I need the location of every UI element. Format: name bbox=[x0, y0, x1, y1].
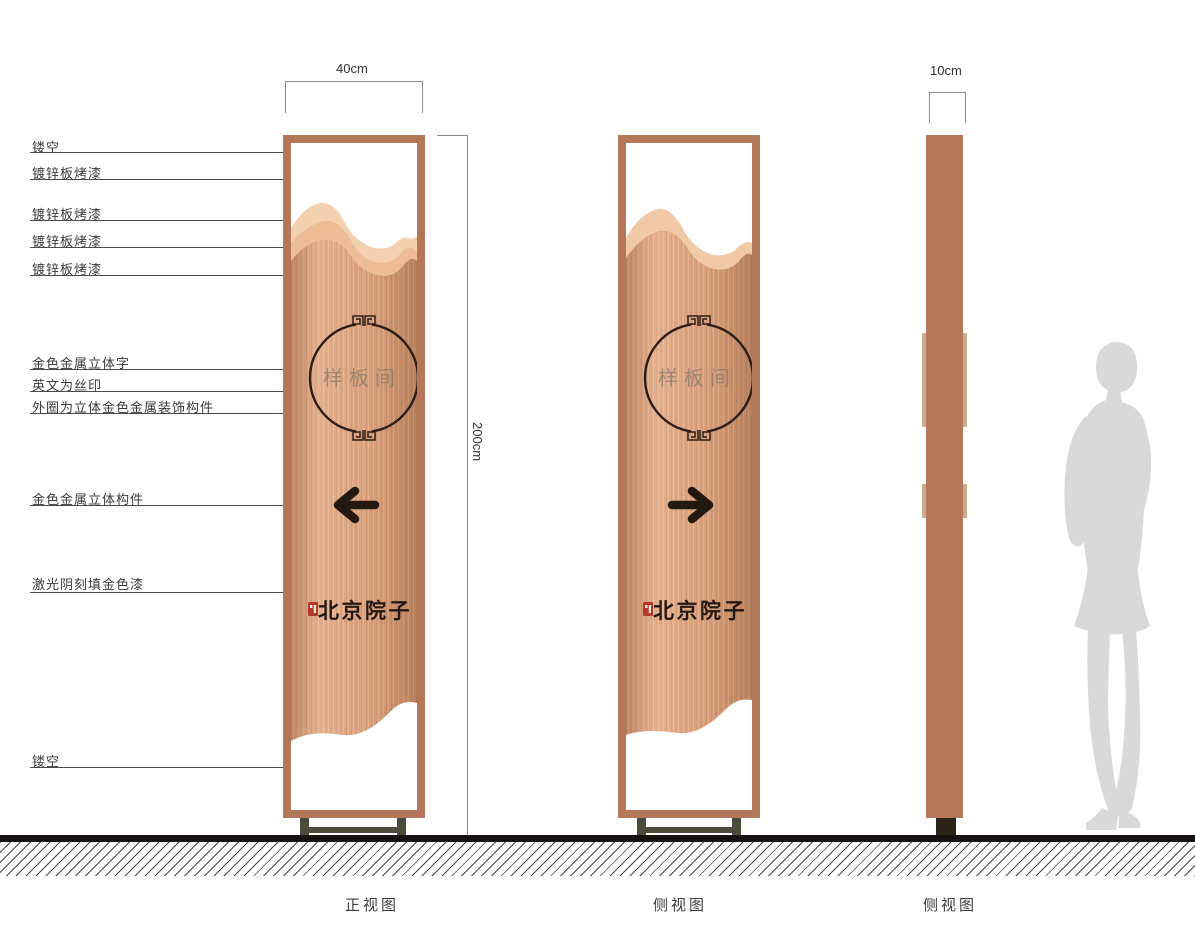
view-title-front: 正视图 bbox=[345, 894, 399, 915]
dim-bracket-height bbox=[437, 135, 468, 836]
pylon-side-graphic: 样板间 北京院子 bbox=[626, 143, 752, 810]
red-seal-icon bbox=[308, 602, 318, 616]
pylon-front-graphic: 样板间 北京院子 bbox=[291, 143, 417, 810]
profile-base-block bbox=[936, 818, 956, 836]
view-title-side-1: 侧视图 bbox=[653, 894, 707, 915]
base-crossbar bbox=[637, 827, 741, 833]
room-label-text: 样板间 bbox=[658, 367, 736, 390]
leader-line bbox=[30, 592, 322, 593]
leader-line bbox=[30, 179, 283, 180]
room-label-text: 样板间 bbox=[323, 367, 401, 390]
brand-text: 北京院子 bbox=[318, 599, 412, 623]
leader-line bbox=[30, 152, 305, 153]
dim-bracket-side-width bbox=[929, 92, 966, 123]
spec-drawing-canvas: 镂空 镀锌板烤漆 镀锌板烤漆 镀锌板烤漆 镀锌板烤漆 金色金属立体字 英文为丝印… bbox=[0, 0, 1195, 927]
leader-line bbox=[30, 247, 291, 248]
dim-side-width: 10cm bbox=[930, 63, 962, 78]
brand-calligraphy: 北京院子 bbox=[308, 599, 412, 623]
leader-line bbox=[30, 767, 303, 768]
pylon-side-view-front: 样板间 北京院子 bbox=[618, 135, 760, 818]
leader-line bbox=[30, 275, 291, 276]
ground-hatch bbox=[0, 842, 1195, 876]
ground-line bbox=[0, 835, 1195, 842]
brand-text: 北京院子 bbox=[653, 599, 747, 623]
dim-bracket-front-width bbox=[285, 81, 423, 113]
dim-height: 200cm bbox=[470, 422, 485, 461]
pylon-front-view: 样板间 北京院子 bbox=[283, 135, 425, 818]
dim-front-width: 40cm bbox=[336, 61, 368, 76]
human-scale-silhouette bbox=[1028, 336, 1178, 836]
view-title-side-2: 侧视图 bbox=[923, 894, 977, 915]
red-seal-icon bbox=[643, 602, 653, 616]
brand-calligraphy: 北京院子 bbox=[643, 599, 747, 623]
leader-line bbox=[30, 413, 308, 414]
callout-laser-engraved: 激光阴刻填金色漆 bbox=[32, 574, 144, 593]
base-crossbar bbox=[300, 827, 406, 833]
pylon-profile-view bbox=[926, 135, 963, 818]
leader-line bbox=[30, 220, 323, 221]
callout-hollow-top: 镂空 bbox=[32, 137, 60, 156]
